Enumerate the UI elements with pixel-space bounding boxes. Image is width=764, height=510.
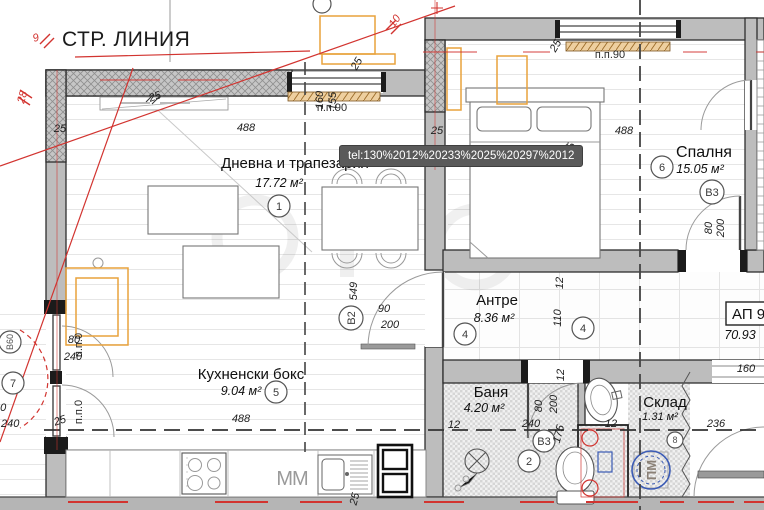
marker-b3-bedroom: В3 bbox=[705, 187, 718, 199]
dim-bed-door-80: 80 bbox=[703, 221, 715, 234]
dim-155-window: 155 bbox=[327, 91, 339, 110]
marker-b60: В60 bbox=[5, 334, 15, 350]
terrace-number: 7 bbox=[10, 378, 16, 390]
dim-160-window: 160 bbox=[314, 90, 326, 109]
marker-b2: В2 bbox=[346, 311, 358, 324]
dim-balc-240b: 240 bbox=[0, 418, 20, 430]
bedroom-window bbox=[555, 20, 681, 51]
kitchen-area: 9.04 м² bbox=[221, 384, 262, 398]
door-leaf bbox=[53, 315, 60, 370]
dim-balc-240: 240 bbox=[63, 351, 83, 363]
bath-name: Баня bbox=[474, 384, 509, 401]
dim-kitchen-width: 488 bbox=[232, 413, 251, 425]
dim-bath-240: 240 bbox=[521, 418, 541, 430]
red-dim-9: 9 bbox=[31, 32, 41, 45]
floor-plan-drawing: СТР. ЛИНИЯ 9 28 10 Дневна и трапезария 1… bbox=[0, 0, 764, 510]
mm-label: ММ bbox=[276, 468, 308, 490]
wall-central-lower bbox=[425, 347, 443, 497]
dim-hall-12a: 12 bbox=[554, 277, 566, 289]
storage-area: 1.31 м² bbox=[642, 411, 678, 423]
wardrobe bbox=[757, 40, 764, 250]
dim-living-width: 488 bbox=[237, 122, 256, 134]
bedroom-area: 15.05 м² bbox=[676, 162, 724, 176]
hall-number-2: 4 bbox=[580, 323, 586, 335]
stove-icon bbox=[182, 453, 226, 494]
bed bbox=[466, 88, 604, 258]
kitchen-name: Кухненски бокс bbox=[198, 366, 305, 383]
pillow bbox=[537, 107, 591, 131]
floor-plan[interactable]: СТР. ЛИНИЯ 9 28 10 Дневна и трапезария 1… bbox=[0, 0, 764, 510]
link-tooltip: tel:130%2012%20233%2025%20297%2012 bbox=[339, 145, 583, 167]
dim-25-b: 25 bbox=[53, 123, 67, 135]
dim-hall-12b: 12 bbox=[555, 369, 567, 381]
wall-bottom-band bbox=[0, 497, 764, 510]
axis-bubble bbox=[313, 0, 331, 13]
living-number: 1 bbox=[276, 201, 282, 213]
kitchen-counter bbox=[66, 445, 426, 497]
dim-bath-200: 200 bbox=[548, 394, 560, 414]
dim-balc-80b: 80 bbox=[0, 402, 7, 414]
dim-door-200: 200 bbox=[380, 319, 400, 331]
apartment-code: АП 9 bbox=[732, 306, 764, 323]
dim-bedroom-width: 488 bbox=[615, 125, 634, 137]
fridge-icon bbox=[378, 445, 412, 497]
bath-number: 2 bbox=[526, 456, 532, 468]
kitchen-sink-icon bbox=[318, 455, 372, 494]
bath-area: 4.20 м² bbox=[464, 401, 505, 415]
hall-name: Антре bbox=[476, 292, 518, 309]
dim-storage-236: 236 bbox=[706, 418, 726, 430]
hall-number: 4 bbox=[462, 329, 468, 341]
dim-balc-80: 80 bbox=[68, 334, 81, 346]
kitchen-number: 5 bbox=[273, 387, 279, 399]
dim-bath-12b: 12 bbox=[605, 418, 617, 430]
storage-number: 8 bbox=[672, 435, 677, 445]
dim-door-90: 90 bbox=[378, 303, 391, 315]
storage-name: Склад bbox=[643, 394, 687, 411]
wall-right bbox=[745, 18, 757, 250]
dim-hall-110: 110 bbox=[552, 308, 564, 326]
bedroom-number: 6 bbox=[659, 162, 665, 174]
dim-549: 549 bbox=[348, 282, 360, 300]
apartment-total-area: 70.93 bbox=[724, 328, 755, 342]
street-line-label: СТР. ЛИНИЯ bbox=[62, 28, 190, 51]
dim-bath-12a: 12 bbox=[448, 419, 460, 431]
bedroom-name: Спалня bbox=[676, 144, 732, 161]
marker-b3-bath: В3 bbox=[537, 436, 550, 448]
dim-bath-80: 80 bbox=[533, 399, 545, 412]
door-leaf bbox=[53, 386, 60, 436]
dim-bed-door-200: 200 bbox=[715, 218, 727, 238]
washer-label: ПМ bbox=[644, 460, 659, 480]
dim-opening-160: 160 bbox=[737, 363, 756, 375]
hall-area: 8.36 м² bbox=[474, 311, 515, 325]
dim-25-d: 25 bbox=[430, 125, 444, 137]
neighbour-door bbox=[694, 427, 764, 497]
pillow bbox=[477, 107, 531, 131]
sill-label-terrace-lower: п.п.0 bbox=[73, 400, 85, 424]
sill-label-bedroom: п.п.90 bbox=[595, 49, 625, 61]
living-area: 17.72 м² bbox=[255, 176, 303, 190]
